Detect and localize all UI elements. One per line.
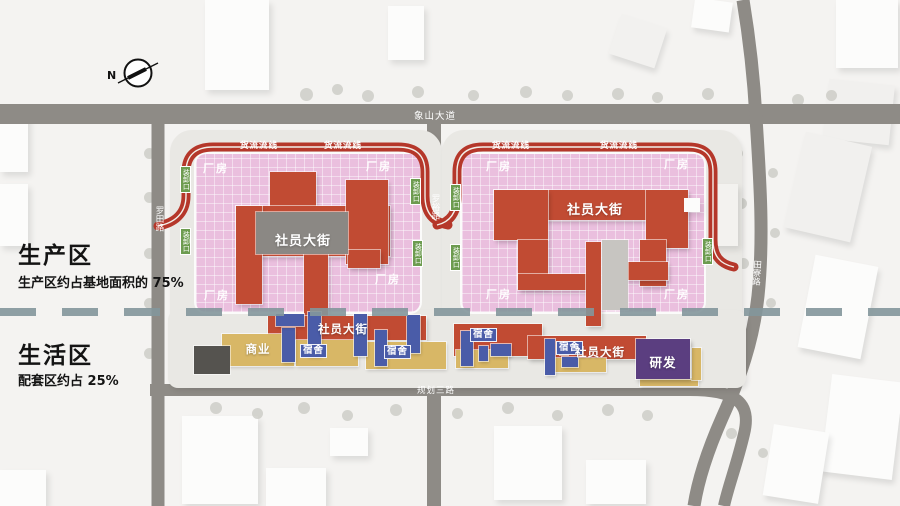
auxiliary-building — [712, 184, 738, 246]
north-letter: N — [107, 69, 116, 82]
dorm-tower — [479, 346, 488, 361]
north-arrow-icon: N — [105, 52, 165, 98]
rnd-label: 研发 — [640, 352, 686, 371]
street-label: 社员大街 — [556, 344, 644, 360]
street-building — [494, 190, 548, 240]
rnd-podium — [640, 378, 698, 386]
factory-label: 厂房 — [486, 286, 512, 302]
transit-station — [194, 346, 230, 374]
commercial-label: 商业 — [228, 341, 288, 357]
dorm-tower — [491, 344, 511, 356]
logistics-flow-label: 货流流线 — [240, 139, 278, 151]
logistics-flow-label: 货流流线 — [600, 139, 638, 151]
road-label-planned3: 规划三路 — [417, 384, 455, 396]
living-zone-title: 生活区 — [18, 336, 93, 370]
factory-label: 厂房 — [375, 271, 401, 287]
road-label-right: 田寮路 — [749, 260, 763, 286]
loading-dock: 装卸口 — [180, 166, 191, 193]
street-label: 社员大街 — [298, 321, 388, 337]
dorm-label: 宿舍 — [300, 344, 327, 358]
loading-dock: 装卸口 — [450, 244, 461, 271]
auxiliary-building — [684, 198, 700, 212]
street-label: 社员大街 — [260, 230, 346, 249]
living-zone-subtitle: 配套区约占 25% — [18, 370, 119, 389]
loading-dock: 装卸口 — [412, 240, 423, 267]
loading-dock: 装卸口 — [702, 238, 713, 265]
factory-label: 厂房 — [664, 286, 690, 302]
factory-label: 厂房 — [204, 287, 230, 303]
street-building — [518, 274, 590, 290]
logistics-flow-label: 货流流线 — [324, 139, 362, 151]
road-label-left: 罗田路 — [153, 206, 165, 232]
site-plan: 厂房 厂房 厂房 厂房 厂房 厂房 厂房 厂房 货流流线 货流流线 货流流线 货… — [0, 0, 900, 506]
street-building — [348, 250, 380, 268]
loading-dock: 装卸口 — [450, 184, 461, 211]
street-building — [586, 242, 601, 326]
production-zone-title: 生产区 — [18, 236, 93, 270]
factory-label: 厂房 — [486, 158, 512, 174]
street-building — [304, 254, 328, 316]
loading-dock: 装卸口 — [410, 178, 421, 205]
production-zone-subtitle: 生产区约占基地面积的 75% — [18, 272, 184, 291]
central-hall — [602, 240, 628, 310]
dorm-tower — [545, 339, 555, 375]
dorm-label: 宿舍 — [384, 345, 411, 359]
logistics-flow-label: 货流流线 — [492, 139, 530, 151]
street-label: 社员大街 — [552, 199, 638, 218]
road-label-xiangshan: 象山大道 — [414, 108, 456, 122]
factory-label: 厂房 — [366, 158, 392, 174]
road-label-middle: 罗裕路 — [429, 194, 441, 220]
factory-label: 厂房 — [203, 160, 229, 176]
loading-dock: 装卸口 — [180, 228, 191, 255]
dorm-label: 宿舍 — [470, 328, 497, 342]
factory-label: 厂房 — [664, 156, 690, 172]
rnd-podium — [692, 348, 701, 380]
